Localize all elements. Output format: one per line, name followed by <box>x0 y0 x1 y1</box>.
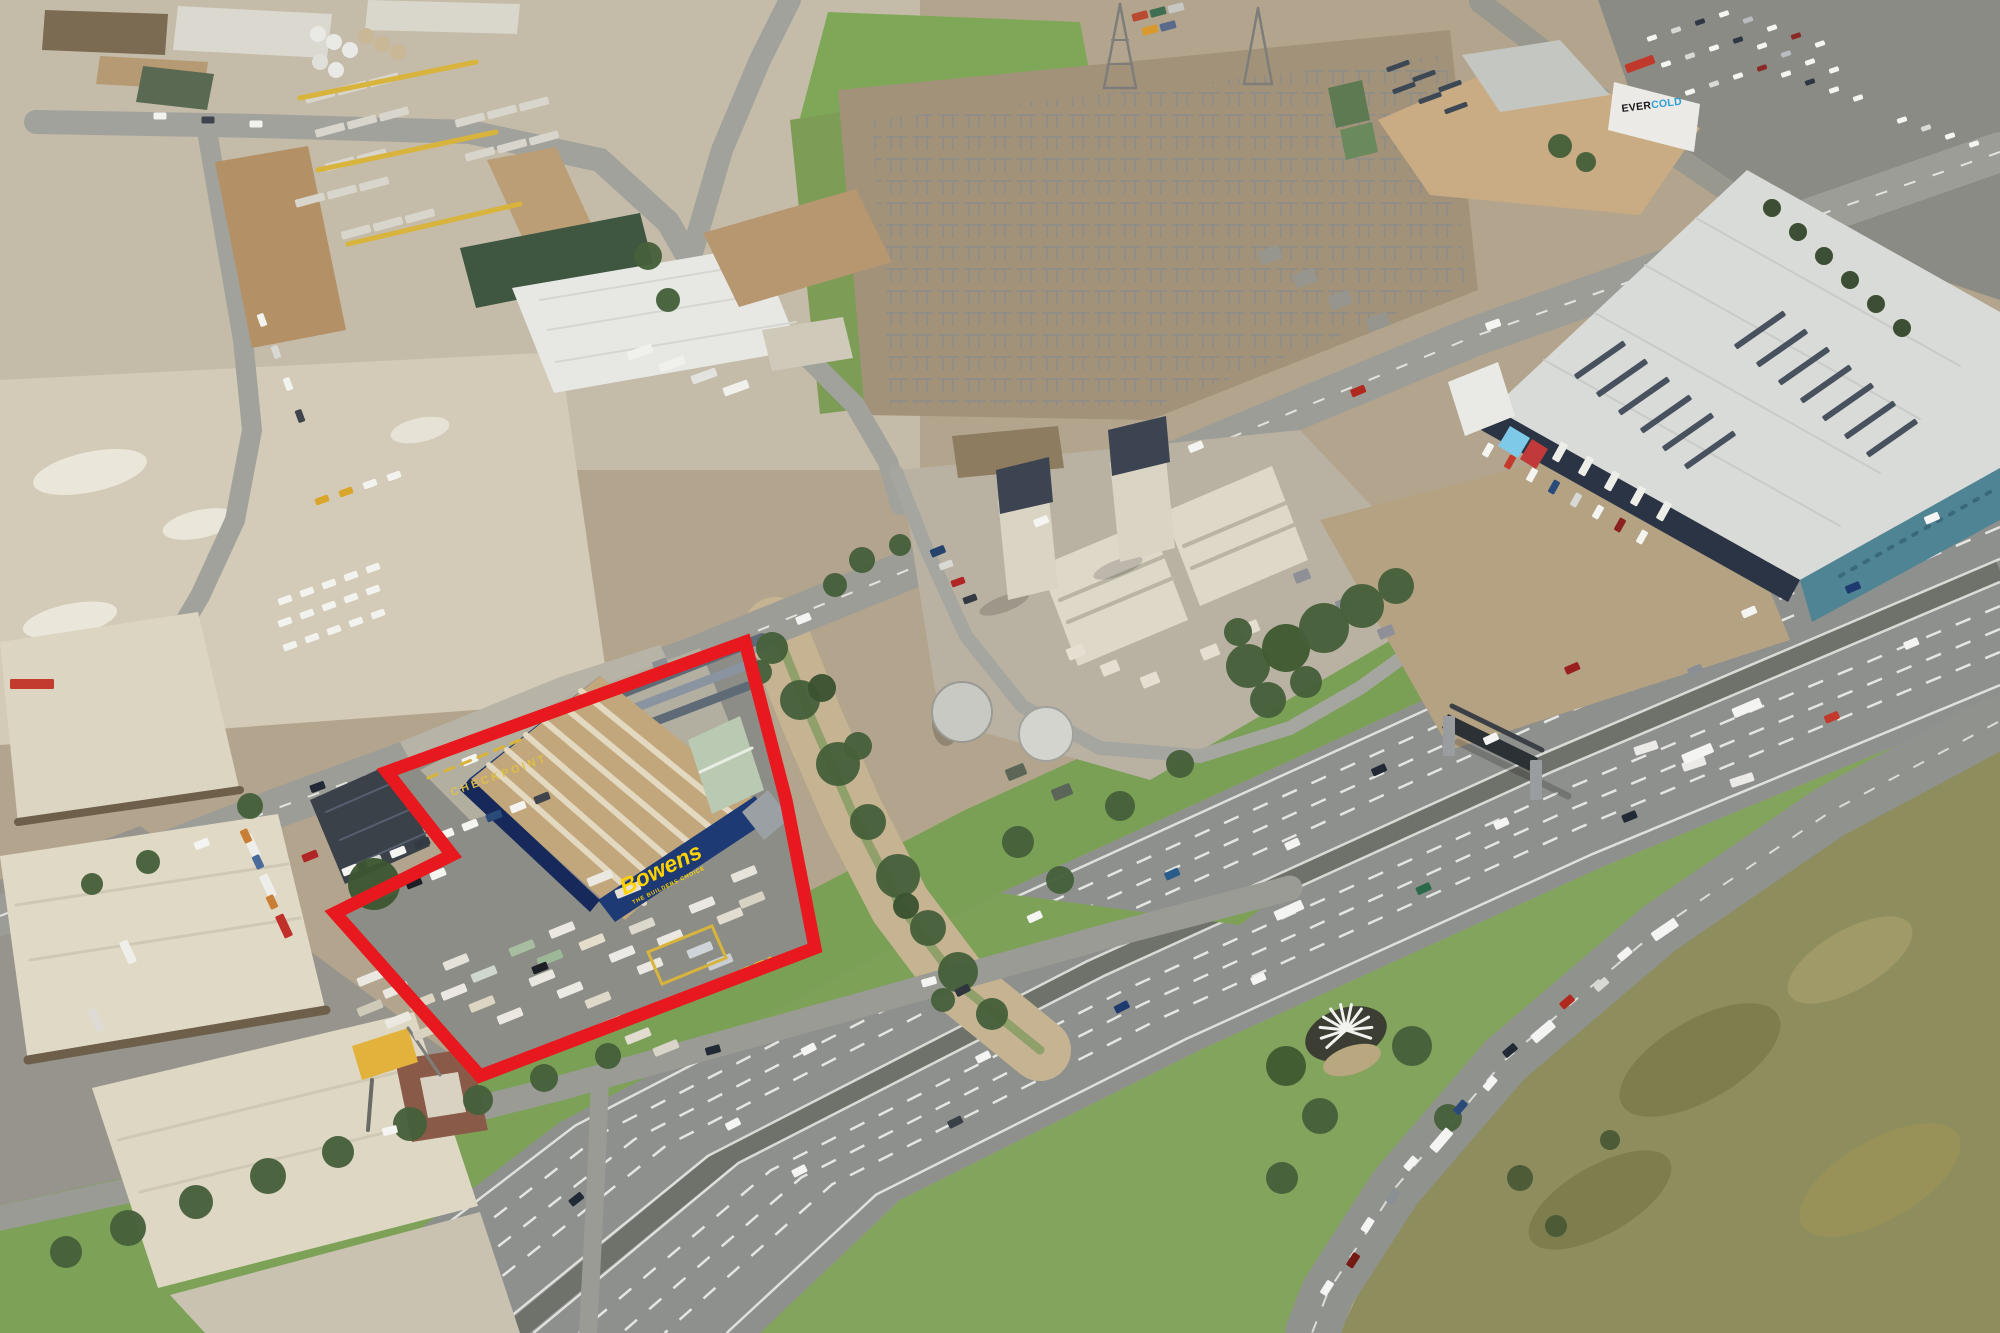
trees <box>1815 247 1833 265</box>
trees <box>656 288 680 312</box>
trees <box>463 1085 493 1115</box>
trees <box>595 1043 621 1069</box>
trees <box>237 793 263 819</box>
aerial-photograph: Bowens THE BUILDERS CHOICE CHECKPOINT EV… <box>0 0 2000 1333</box>
trees <box>1105 791 1135 821</box>
storage-tank-1 <box>932 682 992 742</box>
trees <box>931 988 955 1012</box>
trees <box>976 998 1008 1030</box>
cars-road-nw-a <box>250 121 263 128</box>
warehouse-dark-roof-nw <box>42 10 168 55</box>
trees <box>1250 682 1286 718</box>
silo-tan <box>390 44 406 60</box>
trees <box>1841 271 1859 289</box>
trees <box>1046 866 1074 894</box>
silo-tan <box>374 36 390 52</box>
trees <box>1266 1162 1298 1194</box>
silo <box>342 42 358 58</box>
trees <box>322 1136 354 1168</box>
trees <box>250 1158 286 1194</box>
trees <box>1893 319 1911 337</box>
trees <box>1224 618 1252 646</box>
trees <box>393 1107 427 1141</box>
trees <box>634 242 662 270</box>
trees <box>1166 750 1194 778</box>
trees <box>1763 199 1781 217</box>
brick-building-skylight <box>420 1072 466 1118</box>
trees <box>1302 1098 1338 1134</box>
trees <box>849 547 875 573</box>
trees <box>808 674 836 702</box>
trees <box>1867 295 1885 313</box>
trees <box>910 910 946 946</box>
trees <box>1600 1130 1620 1150</box>
trees <box>179 1185 213 1219</box>
hire-depot-sign <box>10 679 54 689</box>
cars-road-nw-a <box>202 117 215 124</box>
trees <box>1392 1026 1432 1066</box>
trees <box>1507 1165 1533 1191</box>
scene-layer <box>0 0 2000 1333</box>
trees <box>876 854 920 898</box>
trees <box>844 732 872 760</box>
trees <box>938 952 978 992</box>
trees <box>1002 826 1034 858</box>
trees <box>1340 584 1384 628</box>
silo <box>328 62 344 78</box>
screenshot-root: Bowens THE BUILDERS CHOICE CHECKPOINT EV… <box>0 0 2000 1333</box>
storage-tank-2 <box>1019 707 1073 761</box>
cars-road-nw-a <box>154 113 167 120</box>
silo <box>312 54 328 70</box>
trees <box>81 873 103 895</box>
road-branch-south <box>588 1078 600 1333</box>
warehouse-white-nw <box>173 6 332 58</box>
trees <box>1576 152 1596 172</box>
trees <box>1548 134 1572 158</box>
toll-gantry-pylon <box>1443 716 1455 756</box>
trees <box>1789 223 1807 241</box>
trees <box>756 632 788 664</box>
trees <box>1378 568 1414 604</box>
silo <box>326 34 342 50</box>
silo-tan <box>358 28 374 44</box>
shed-row-top <box>365 0 520 34</box>
trees <box>1290 666 1322 698</box>
trees <box>136 850 160 874</box>
trees <box>889 534 911 556</box>
trees <box>530 1064 558 1092</box>
trees <box>50 1236 82 1268</box>
trees <box>823 573 847 597</box>
trees <box>1266 1046 1306 1086</box>
trees <box>850 804 886 840</box>
trees <box>110 1210 146 1246</box>
trees <box>1545 1215 1567 1237</box>
trees <box>893 893 919 919</box>
silo <box>310 26 326 42</box>
toll-gantry-pylon <box>1530 760 1542 800</box>
